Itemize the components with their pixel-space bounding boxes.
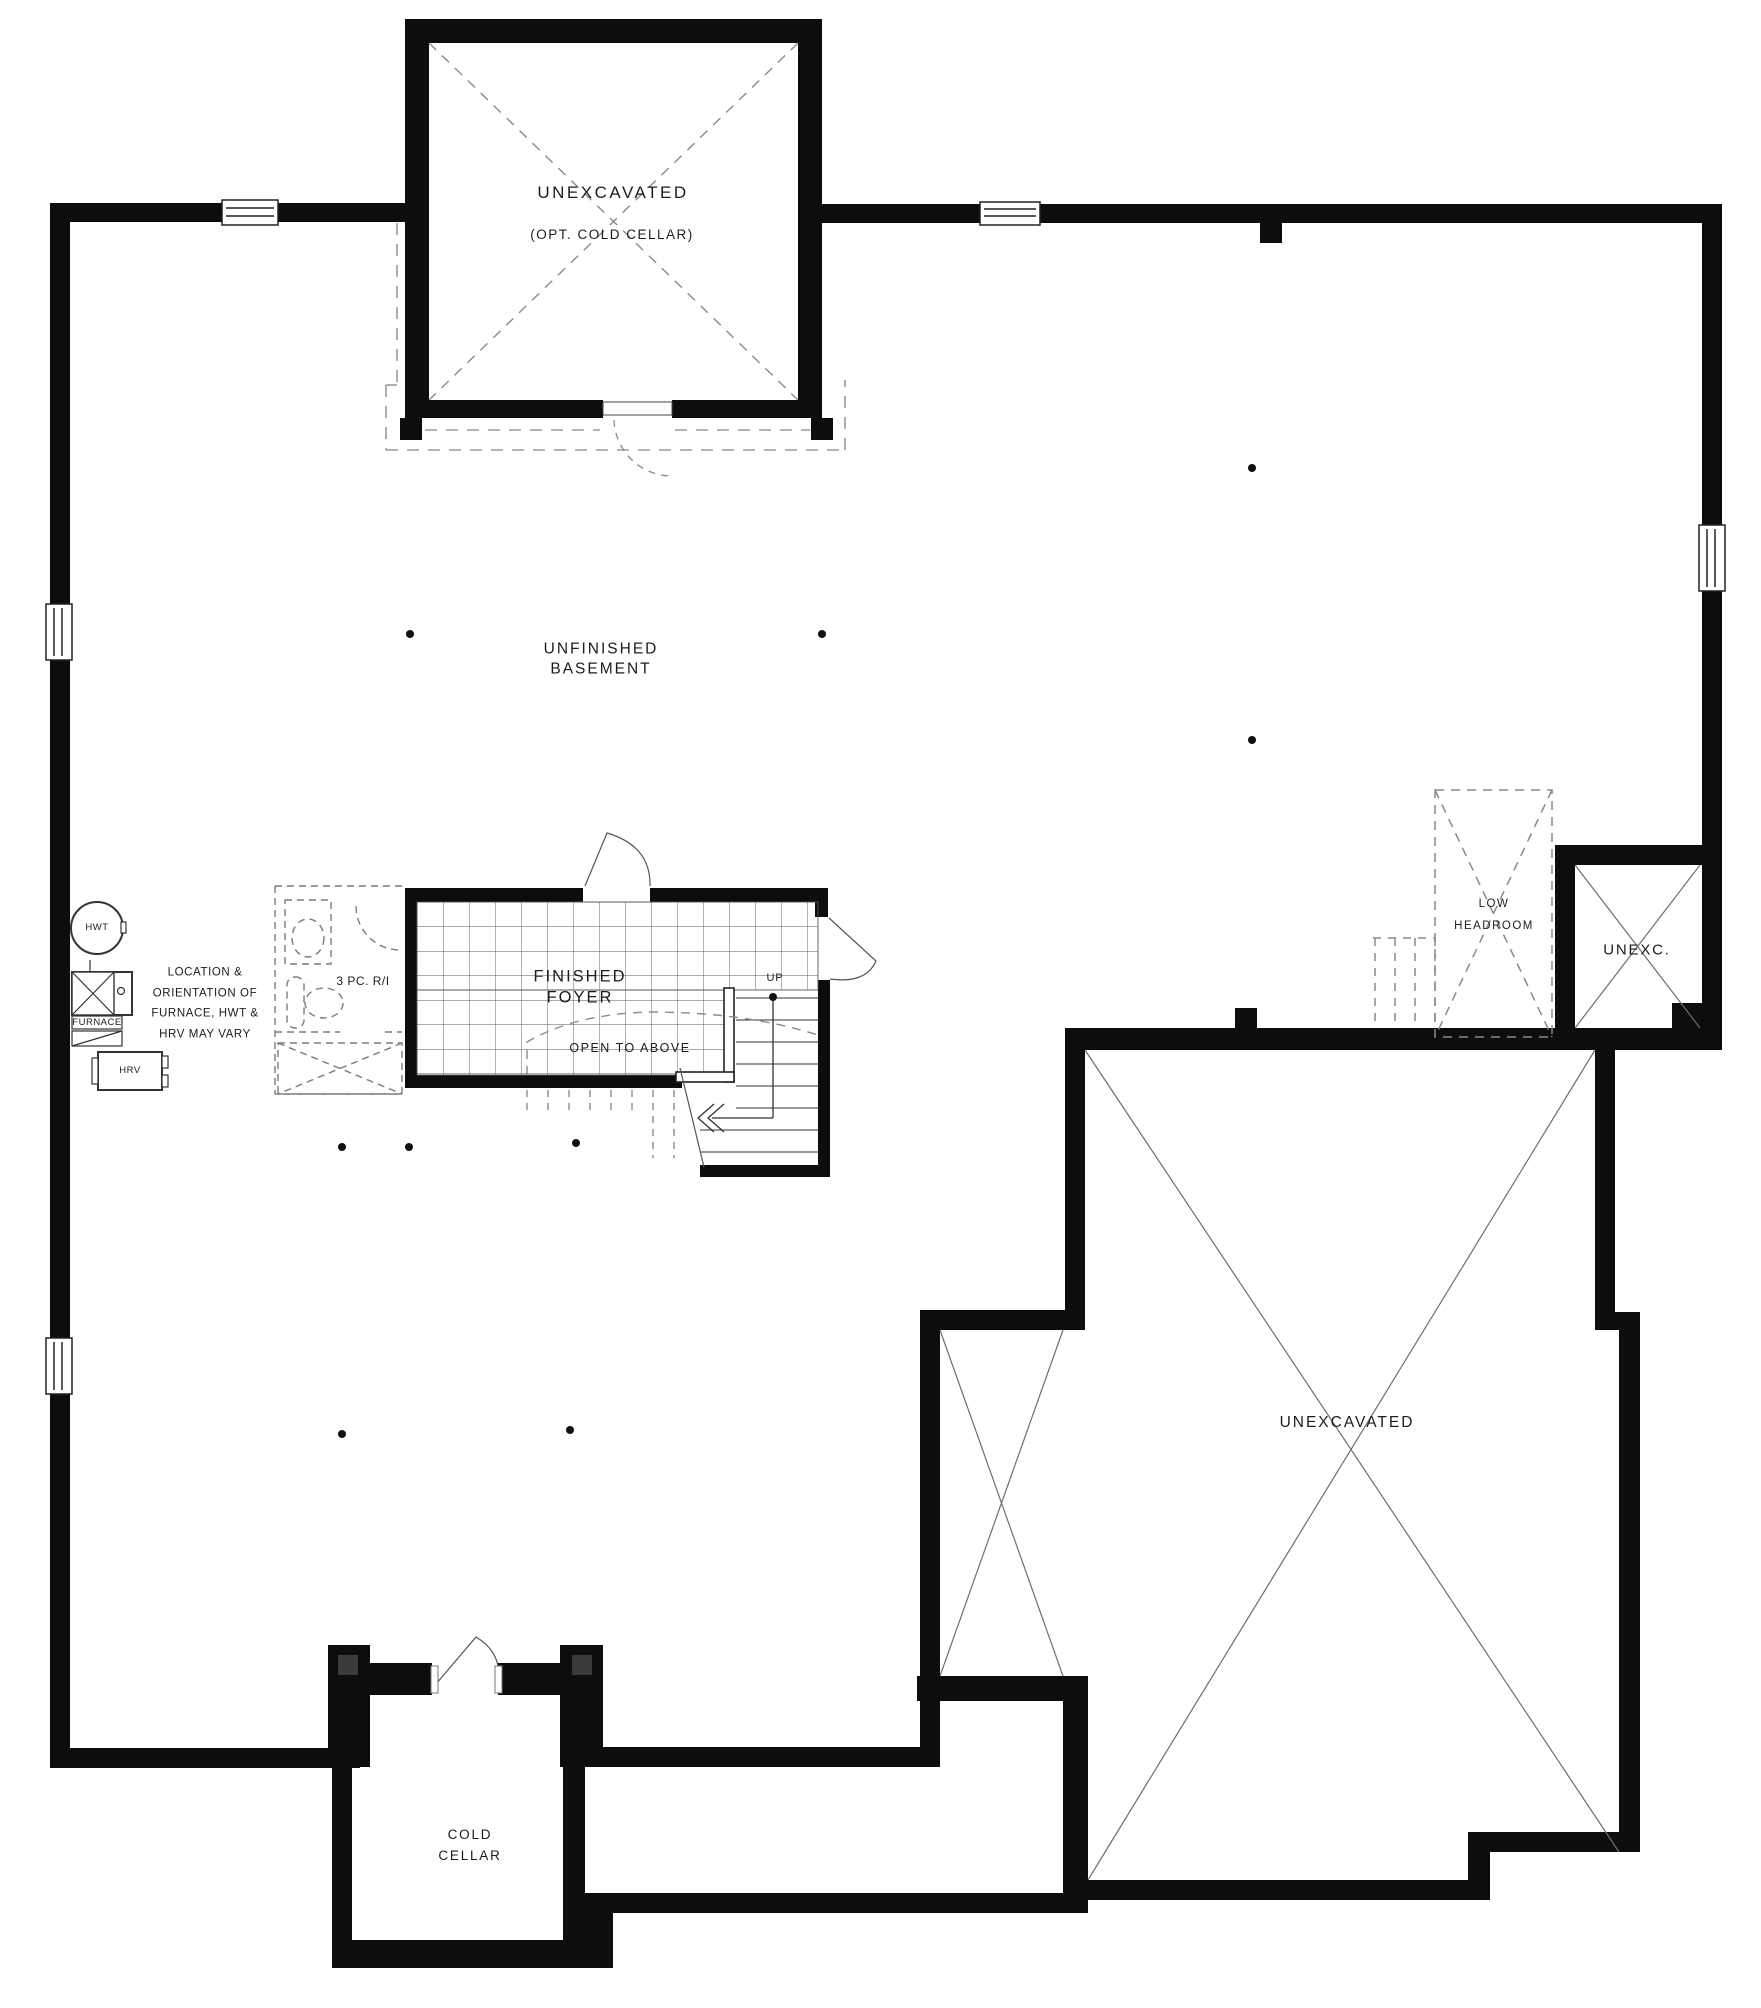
top-room-dashed-x [429,43,798,400]
room-sublabel-opt-cold-cellar: (OPT. COLD CELLAR) [530,226,694,244]
stair-break-line [680,1068,704,1167]
equipment-note: LOCATION & ORIENTATION OF FURNACE, HWT &… [151,963,258,1046]
cold-cellar-door-jambs [431,1666,502,1693]
exterior-walls [50,19,1722,1968]
dashed-lower-flight [527,1090,674,1158]
floor-plan-drawing [0,0,1761,2008]
window-icon-top-right [980,202,1040,225]
top-room-door [603,402,672,476]
tub-icon [287,977,304,1028]
stair-up-label: UP [767,971,784,985]
window-icons [46,200,1725,1394]
window-icon-left-upper [46,604,72,660]
dashed-steps [1373,938,1435,1028]
unexcavated-x-marks [940,865,1700,1880]
bath-rough-in-label: 3 PC. R/I [336,974,389,990]
bathroom-rough-in [275,886,402,1094]
bathroom-door-swing [356,906,400,950]
room-label-cold-cellar: COLD CELLAR [438,1825,501,1867]
foyer-top-door [585,833,650,886]
hwt-label: HWT [85,922,108,934]
open-to-above-label: OPEN TO ABOVE [569,1040,690,1056]
window-icon-right [1699,525,1725,591]
sink-icon [305,988,343,1018]
toilet-icon [285,900,331,964]
room-label-finished-foyer: FINISHED FOYER [533,967,626,1010]
furnace-label: FURNACE [72,1017,121,1029]
room-label-unexcavated-top: UNEXCAVATED [537,182,688,204]
low-headroom-label: LOW HEADROOM [1454,894,1534,938]
room-label-unexc-small: UNEXC. [1603,940,1670,960]
cold-cellar-door [436,1637,499,1684]
window-icon-left-lower [46,1338,72,1394]
window-icon-top-left [222,200,278,225]
basement-floor-plan: UNEXCAVATED (OPT. COLD CELLAR) UNFINISHE… [0,0,1761,2008]
room-label-unexcavated-main: UNEXCAVATED [1280,1413,1415,1433]
foyer-side-door [829,918,876,980]
hrv-label: HRV [119,1065,140,1077]
shower-base-icon [278,1043,402,1094]
room-label-unfinished-basement: UNFINISHED BASEMENT [544,640,659,681]
furnace-icon [72,960,132,1046]
